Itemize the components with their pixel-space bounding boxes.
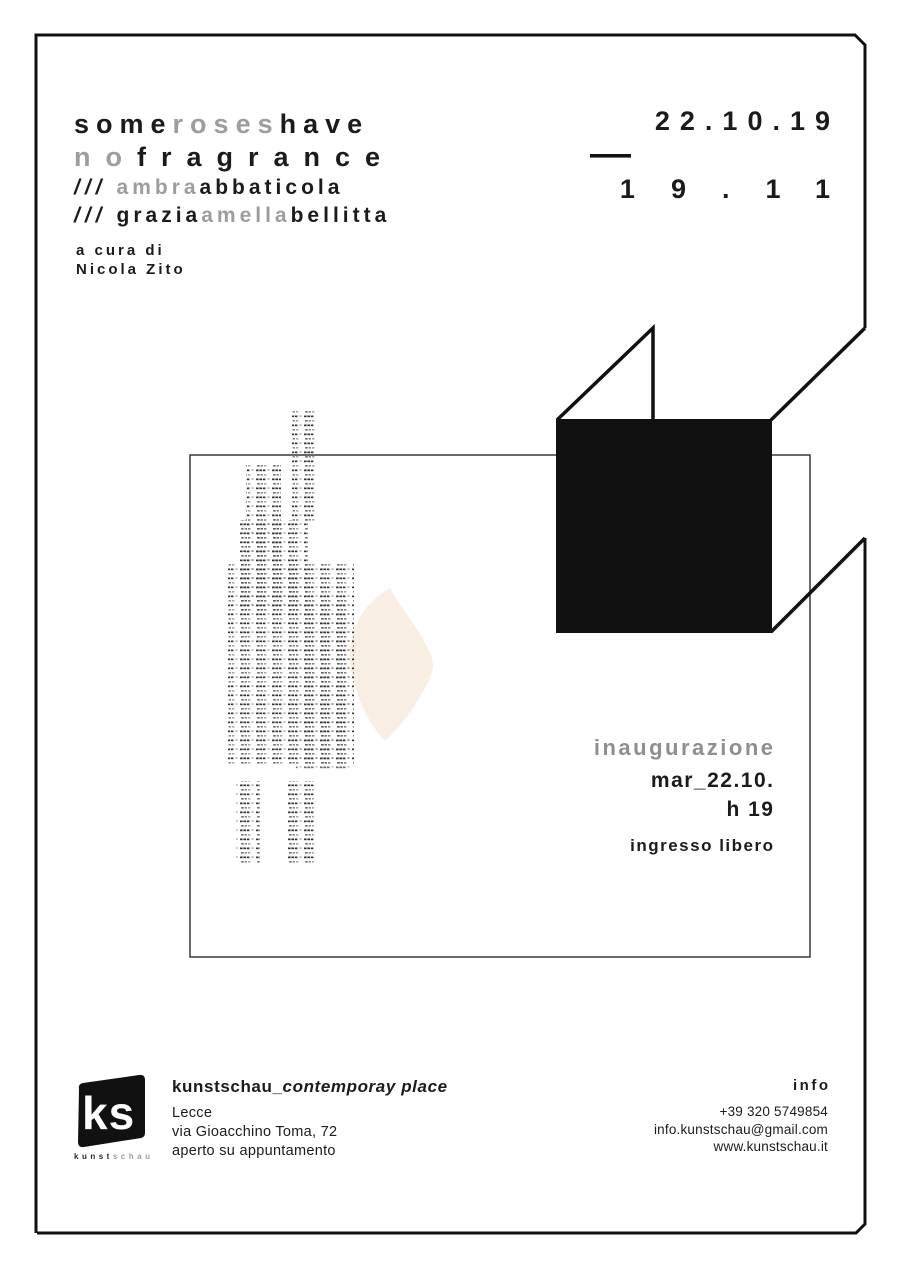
- curator-label: a cura di: [76, 241, 186, 260]
- contact-details: +39 320 5749854 info.kunstschau@gmail.co…: [654, 1103, 828, 1156]
- artist-name-part: amella: [201, 204, 290, 227]
- contact-phone: +39 320 5749854: [654, 1103, 828, 1121]
- title-line-2: nofragrance: [74, 141, 395, 174]
- title-line-1: someroseshave: [74, 108, 395, 141]
- contact-email: info.kunstschau@gmail.com: [654, 1121, 828, 1139]
- artist-name-part: bellitta: [291, 204, 391, 227]
- opening-info: inaugurazione mar_22.10. h 19 ingresso l…: [594, 735, 773, 856]
- contact-website: www.kunstschau.it: [654, 1138, 828, 1156]
- contact-heading: info: [654, 1077, 831, 1094]
- logo-caption-light: schau: [113, 1152, 154, 1161]
- venue-city: Lecce: [172, 1104, 448, 1123]
- date-range: 22.10.19 19.11: [555, 106, 830, 205]
- contact-info: info +39 320 5749854 info.kunstschau@gma…: [654, 1077, 828, 1156]
- opening-label: inaugurazione: [594, 735, 776, 761]
- venue-name-italic: contemporay place: [283, 1077, 448, 1096]
- logo-caption-dark: kunst: [74, 1152, 113, 1161]
- start-date: 22.10.19: [555, 106, 840, 137]
- curator-note: a cura di Nicola Zito: [76, 241, 186, 279]
- opening-date: mar_22.10.: [594, 769, 775, 793]
- artist-name-part: abbaticola: [200, 176, 344, 199]
- venue-name: kunstschau_contemporay place: [172, 1077, 448, 1097]
- title-word: fragrance: [137, 142, 395, 172]
- exhibition-title: someroseshave nofragrance: [74, 108, 395, 174]
- title-word: have: [280, 109, 370, 139]
- artist-line: ///ambraabbaticola: [74, 174, 390, 202]
- venue-info: kunstschau_contemporay place Lecce via G…: [172, 1077, 448, 1161]
- venue-name-bold: kunstschau_: [172, 1077, 283, 1096]
- artist-name-part: grazia: [117, 204, 202, 227]
- curator-name: Nicola Zito: [76, 260, 186, 279]
- artist-list: ///ambraabbaticola ///graziaamellabellit…: [74, 174, 390, 230]
- cube-graphic: [556, 328, 865, 633]
- title-word: some: [74, 109, 173, 139]
- blob-shape: [350, 588, 433, 741]
- venue-address: via Gioacchino Toma, 72: [172, 1123, 448, 1142]
- dot-texture: [228, 409, 354, 863]
- logo-caption: kunstschau: [74, 1152, 153, 1161]
- slashes-glyph: ///: [74, 204, 107, 227]
- slashes-glyph: ///: [74, 176, 107, 199]
- artist-name-part: ambra: [117, 176, 200, 199]
- ks-logo-letters: ks: [82, 1087, 135, 1139]
- venue-note: aperto su appuntamento: [172, 1142, 448, 1161]
- artist-line: ///graziaamellabellitta: [74, 202, 390, 230]
- admission-note: ingresso libero: [594, 836, 775, 856]
- opening-time: h 19: [594, 798, 775, 822]
- end-date: 19.11: [555, 174, 866, 205]
- title-word: no: [74, 142, 137, 172]
- venue-details: Lecce via Gioacchino Toma, 72 aperto su …: [172, 1104, 448, 1161]
- title-word: roses: [173, 109, 280, 139]
